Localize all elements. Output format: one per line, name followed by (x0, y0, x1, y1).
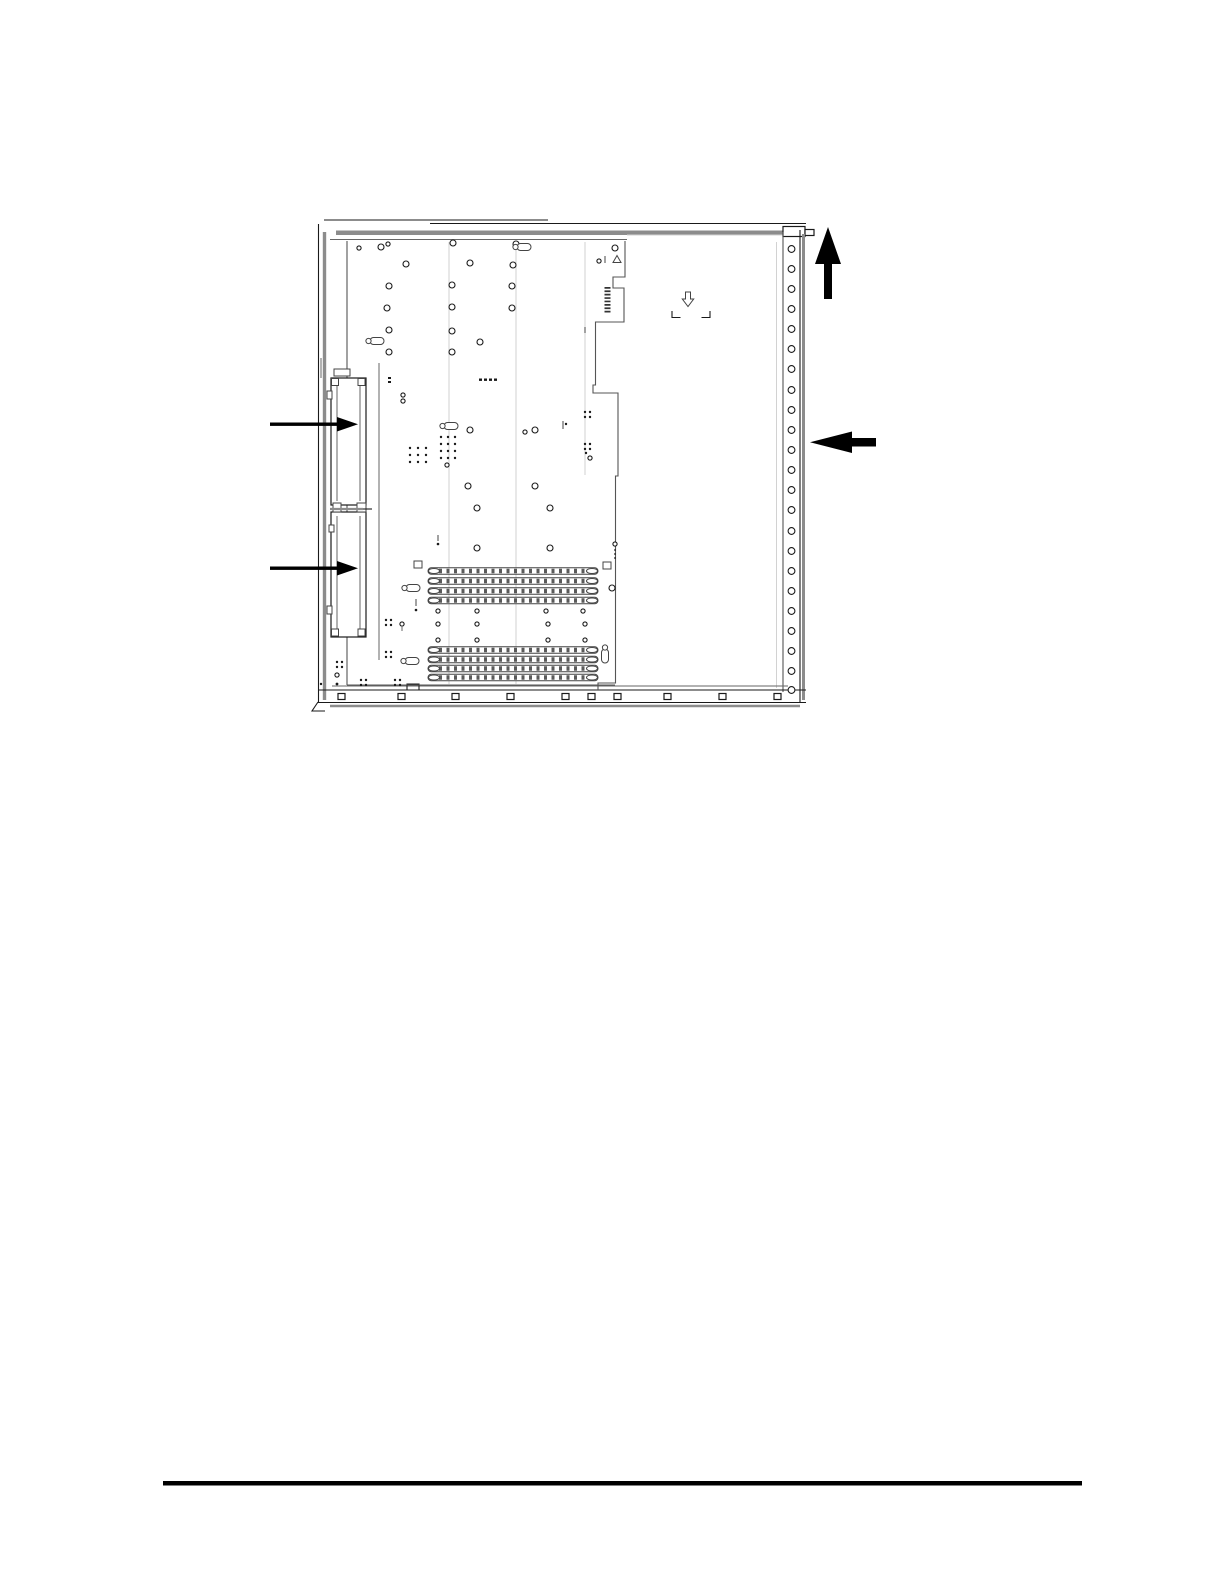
figure-system-tray-diagram (0, 0, 1224, 1584)
connector-slot-group-lower (428, 647, 598, 681)
screw-holes (335, 240, 618, 677)
bottom-rail-slots (338, 694, 781, 700)
left-assembly (321, 358, 372, 637)
chassis-outline (312, 220, 814, 711)
page (0, 0, 1224, 1584)
footer-rule (163, 1481, 1082, 1486)
connector-slot-group-upper (428, 568, 598, 604)
callout-arrow-top-right (815, 227, 841, 299)
mounting-hole-strip (788, 246, 795, 694)
callout-arrow-middle-right (810, 432, 876, 454)
